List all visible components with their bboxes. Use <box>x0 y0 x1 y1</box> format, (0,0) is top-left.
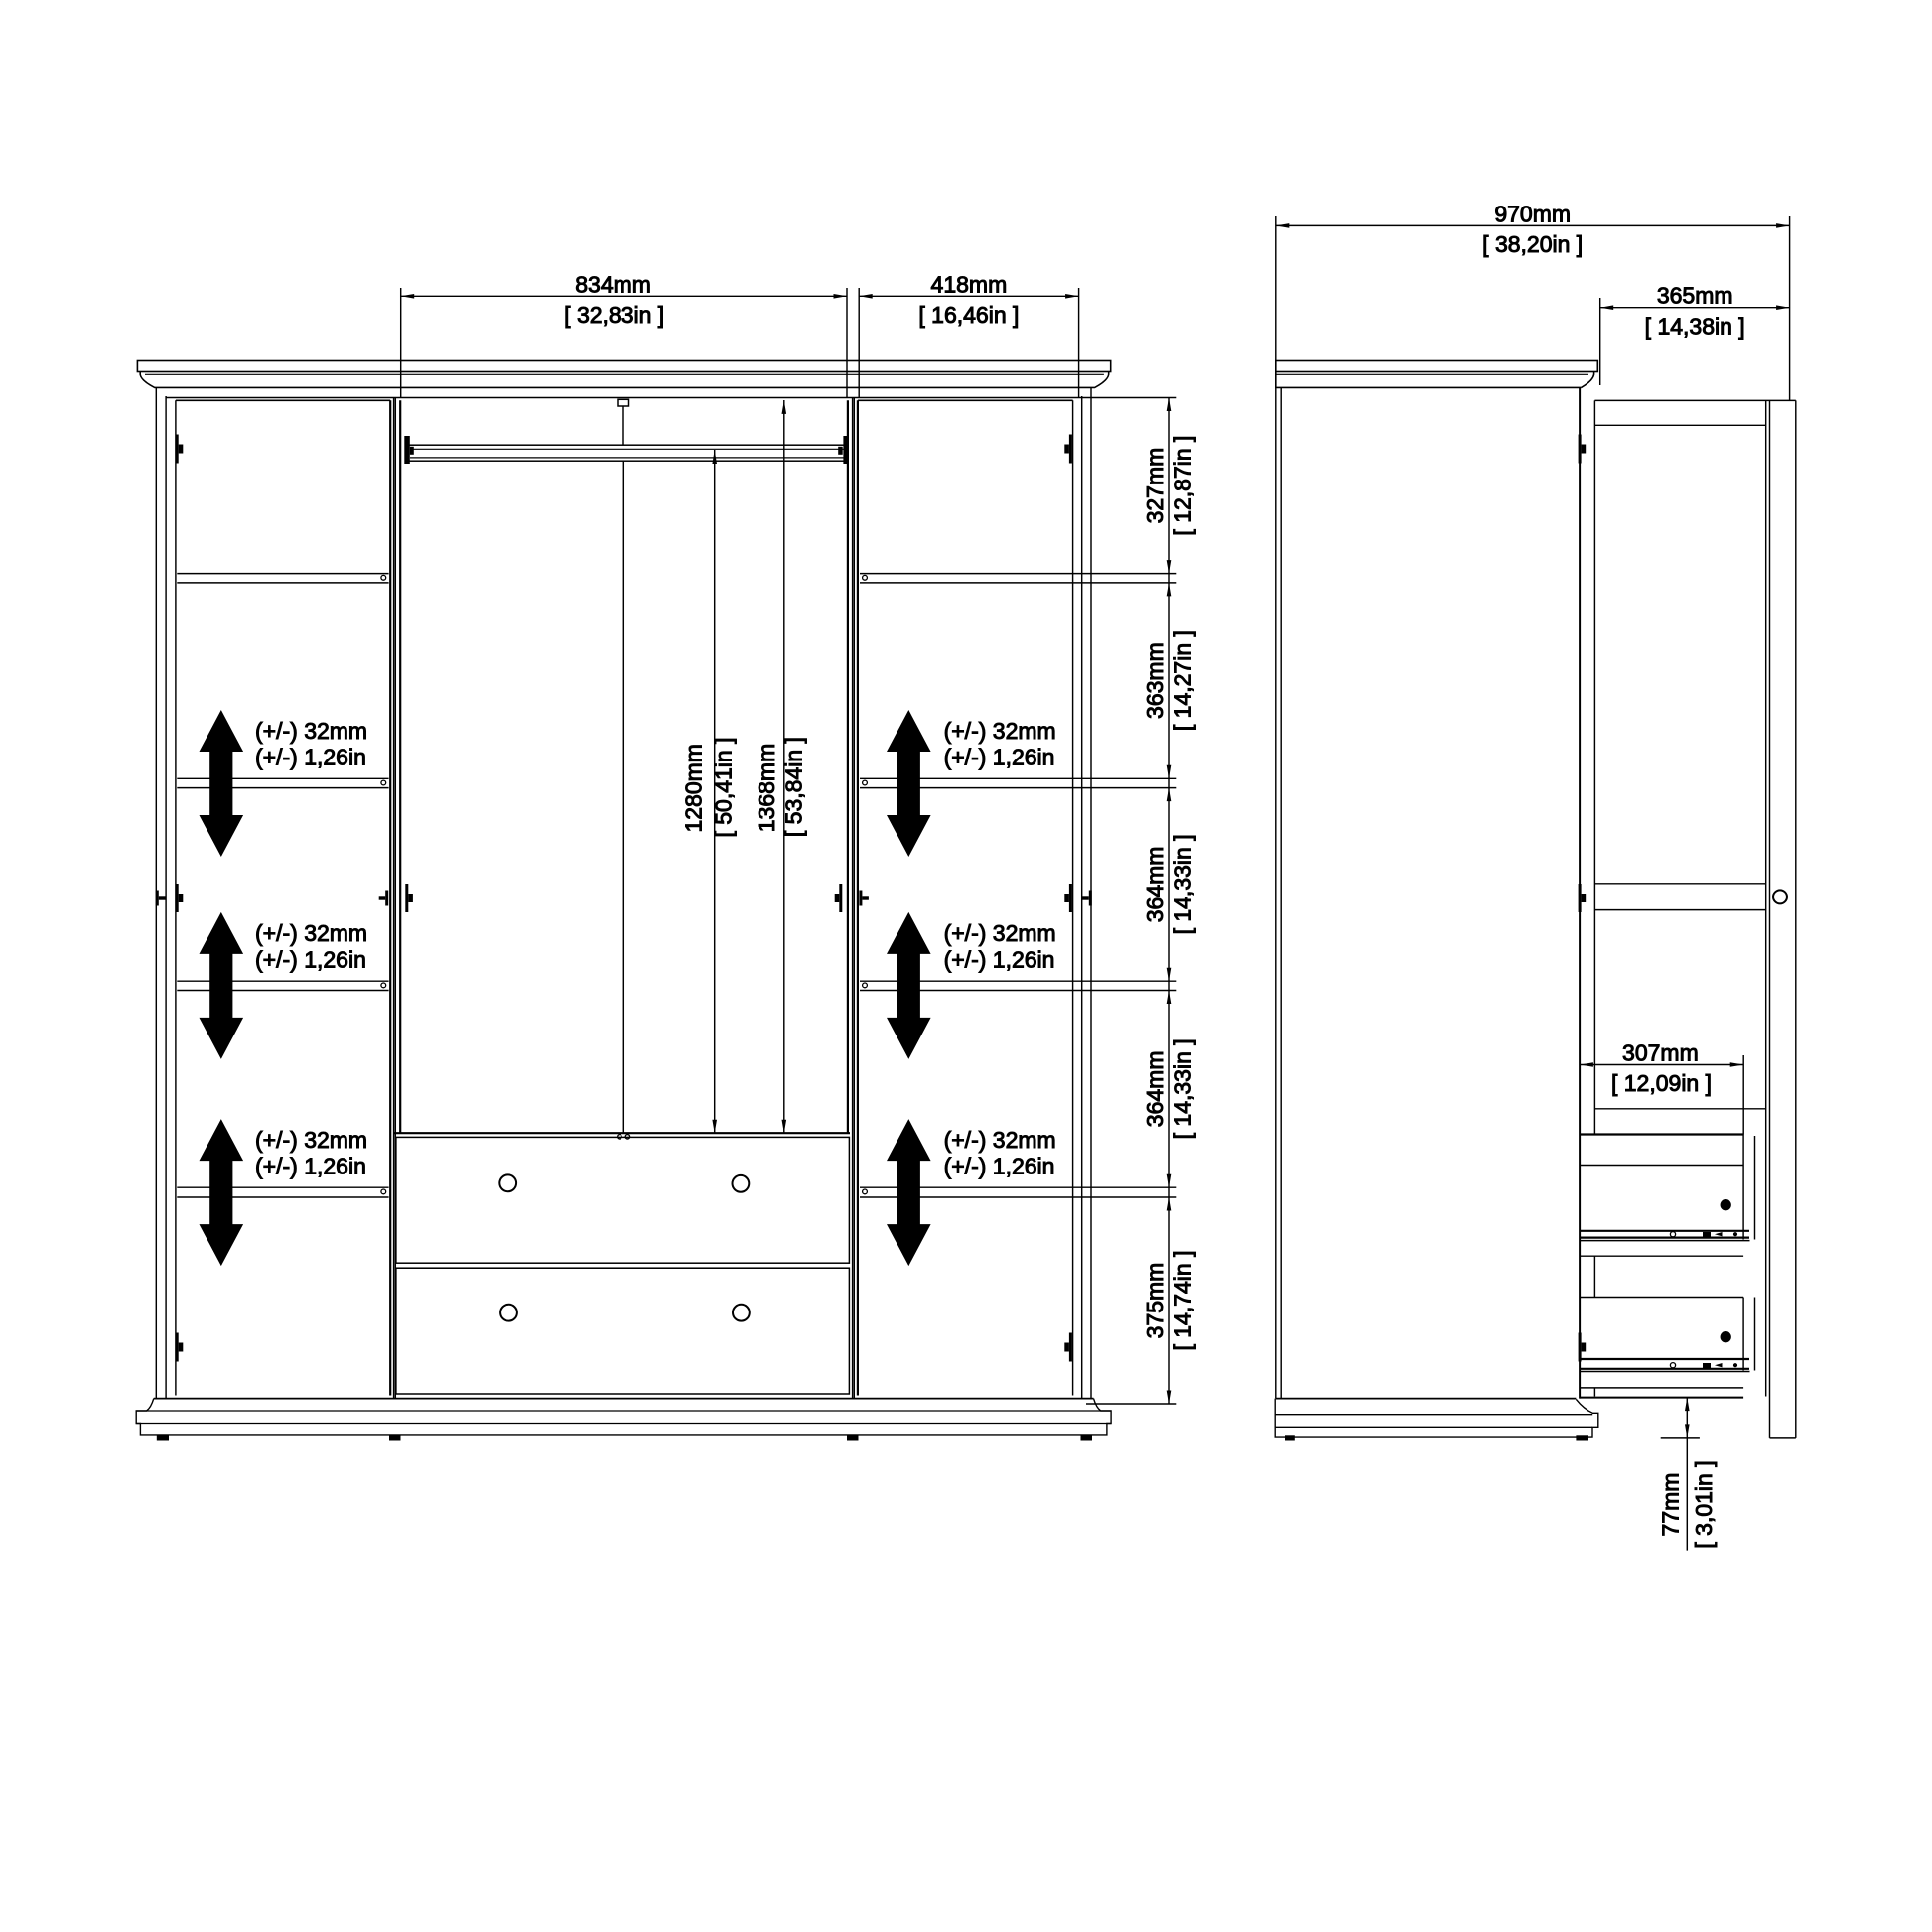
svg-text:327mm: 327mm <box>1142 448 1168 524</box>
svg-text:[ 16,46in ]: [ 16,46in ] <box>918 302 1019 328</box>
svg-text:[ 14,74in ]: [ 14,74in ] <box>1171 1250 1196 1350</box>
svg-text:(+/-) 1,26in: (+/-) 1,26in <box>255 1154 366 1179</box>
svg-text:834mm: 834mm <box>575 271 651 297</box>
svg-text:[ 3,01in ]: [ 3,01in ] <box>1691 1460 1717 1548</box>
svg-text:(+/-) 32mm: (+/-) 32mm <box>255 718 367 744</box>
svg-text:307mm: 307mm <box>1622 1040 1699 1066</box>
svg-text:970mm: 970mm <box>1494 201 1571 226</box>
svg-text:(+/-) 1,26in: (+/-) 1,26in <box>944 1154 1055 1179</box>
svg-text:[ 38,20in ]: [ 38,20in ] <box>1482 231 1583 257</box>
svg-text:77mm: 77mm <box>1658 1473 1684 1537</box>
svg-text:[ 14,33in ]: [ 14,33in ] <box>1171 834 1196 934</box>
svg-text:(+/-) 32mm: (+/-) 32mm <box>944 920 1056 946</box>
svg-text:365mm: 365mm <box>1657 283 1733 309</box>
svg-text:(+/-) 1,26in: (+/-) 1,26in <box>944 745 1055 770</box>
svg-text:1280mm: 1280mm <box>680 744 706 832</box>
svg-text:363mm: 363mm <box>1142 642 1168 719</box>
svg-text:[ 14,38in ]: [ 14,38in ] <box>1645 313 1745 339</box>
svg-text:418mm: 418mm <box>931 271 1008 297</box>
svg-text:(+/-) 32mm: (+/-) 32mm <box>255 1127 367 1153</box>
svg-text:[ 14,27in ]: [ 14,27in ] <box>1171 630 1196 731</box>
svg-text:(+/-) 32mm: (+/-) 32mm <box>944 1127 1056 1153</box>
svg-text:[ 12,09in ]: [ 12,09in ] <box>1611 1070 1712 1096</box>
svg-text:[ 32,83in ]: [ 32,83in ] <box>564 302 664 328</box>
svg-text:(+/-) 1,26in: (+/-) 1,26in <box>255 745 366 770</box>
svg-text:[ 53,84in ]: [ 53,84in ] <box>780 737 806 837</box>
svg-text:(+/-) 1,26in: (+/-) 1,26in <box>255 946 366 972</box>
svg-text:[ 12,87in ]: [ 12,87in ] <box>1171 436 1196 536</box>
svg-text:1368mm: 1368mm <box>754 744 779 832</box>
svg-text:[ 50,41in ]: [ 50,41in ] <box>710 737 736 837</box>
svg-text:(+/-) 1,26in: (+/-) 1,26in <box>944 946 1055 972</box>
svg-text:[ 14,33in ]: [ 14,33in ] <box>1171 1038 1196 1139</box>
svg-text:364mm: 364mm <box>1142 1050 1168 1127</box>
svg-text:(+/-) 32mm: (+/-) 32mm <box>255 920 367 946</box>
svg-text:375mm: 375mm <box>1142 1263 1168 1339</box>
svg-text:364mm: 364mm <box>1142 847 1168 923</box>
svg-text:(+/-) 32mm: (+/-) 32mm <box>944 718 1056 744</box>
